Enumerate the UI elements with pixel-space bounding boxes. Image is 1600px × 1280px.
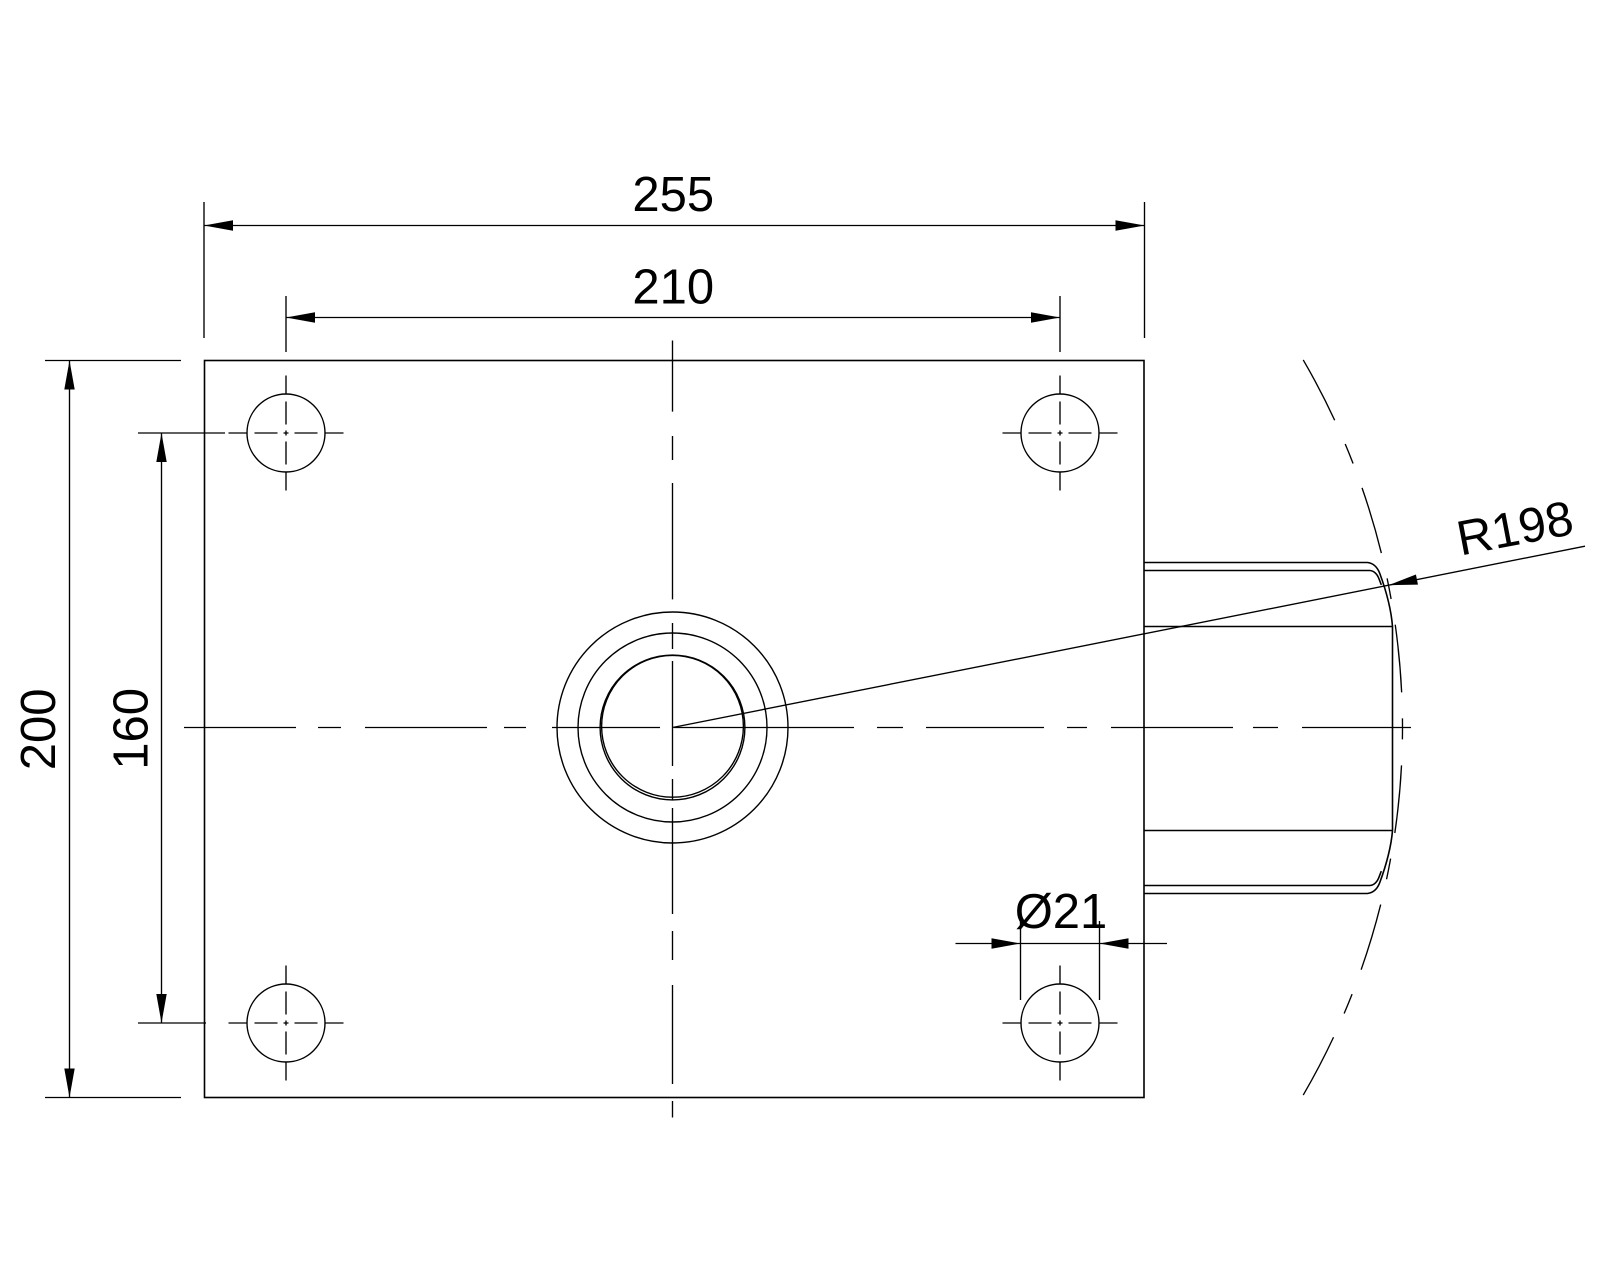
svg-text:200: 200	[12, 689, 66, 771]
svg-text:210: 210	[632, 260, 714, 314]
svg-text:160: 160	[105, 688, 159, 770]
svg-text:Ø21: Ø21	[1015, 885, 1108, 939]
svg-text:255: 255	[632, 168, 714, 222]
